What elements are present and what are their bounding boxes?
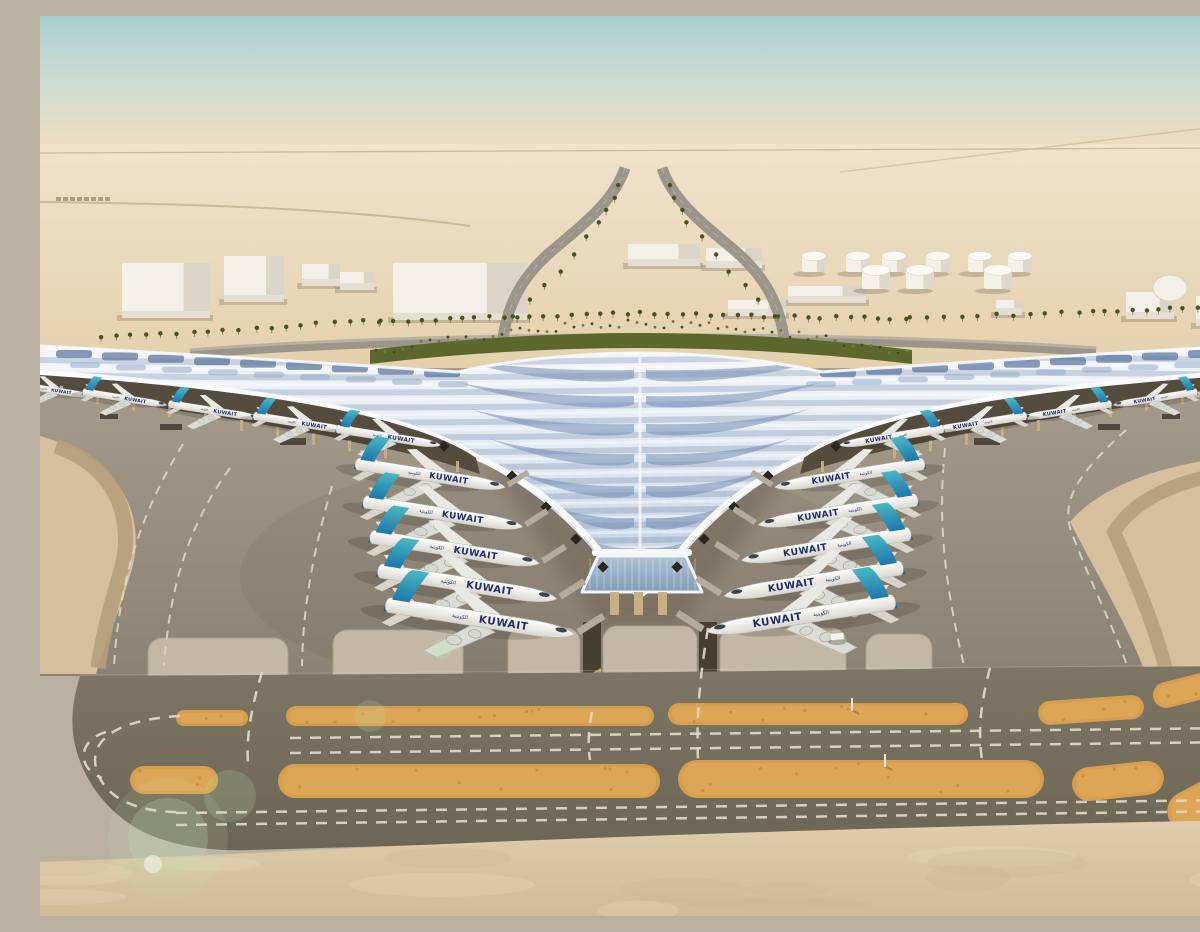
unpaved-strip [278, 764, 660, 798]
palm-tree [511, 314, 515, 318]
palm-tree [236, 328, 240, 332]
distant-structure [105, 197, 110, 201]
palm-tree [616, 183, 620, 187]
palm-tree [333, 320, 337, 324]
palm-tree [361, 318, 365, 322]
palm-tree [975, 314, 979, 318]
palm-tree [681, 312, 685, 316]
palm-tree [433, 318, 437, 322]
lens-flare-spot [108, 778, 228, 898]
palm-tree [762, 315, 766, 319]
palm-tree [721, 313, 725, 317]
palm-tree [597, 220, 601, 224]
palm-tree [709, 314, 713, 318]
distant-structure [77, 197, 82, 201]
palm-tree [584, 234, 588, 238]
palm-tree [849, 315, 853, 319]
palm-tree [1196, 305, 1200, 309]
palm-tree [1091, 309, 1095, 313]
ground-equipment [100, 414, 118, 419]
palm-tree [314, 320, 318, 324]
palm-tree [714, 252, 718, 256]
palm-tree [528, 297, 532, 301]
palm-tree [773, 314, 777, 318]
facade-column [348, 441, 351, 452]
palm-tree [1102, 309, 1106, 313]
ground-equipment [160, 424, 182, 430]
taxiway [72, 666, 1200, 850]
palm-tree [817, 316, 821, 320]
palm-tree [726, 269, 730, 273]
palm-tree [527, 314, 531, 318]
entrance-column [634, 592, 643, 615]
facade-column [312, 434, 315, 445]
glass-facade [582, 556, 702, 592]
palm-tree [448, 316, 452, 320]
palm-tree [743, 283, 747, 287]
palm-tree [570, 313, 574, 317]
distant-structure [84, 197, 89, 201]
palm-tree [515, 315, 519, 319]
palm-tree [1077, 310, 1081, 314]
unpaved-strip [286, 706, 654, 726]
palm-tree [348, 319, 352, 323]
palm-tree [862, 314, 866, 318]
palm-tree [192, 330, 196, 334]
lens-flare-spot [354, 700, 386, 732]
palm-tree [876, 316, 880, 320]
palm-tree [558, 269, 562, 273]
entrance-column [610, 592, 619, 615]
facade-column [929, 441, 932, 452]
palm-tree [700, 234, 704, 238]
palm-tree [994, 312, 998, 316]
rendering-canvas: KUWAITالكويتيةKUWAITالكويتيةKUWAITالكويت… [40, 16, 1200, 916]
palm-tree [1115, 309, 1119, 313]
palm-tree [541, 314, 545, 318]
palm-tree [611, 310, 615, 314]
palm-tree [284, 325, 288, 329]
palm-tree [694, 311, 698, 315]
palm-tree [1059, 310, 1063, 314]
palm-tree [638, 310, 642, 314]
palm-tree [555, 314, 559, 318]
palm-tree [604, 208, 608, 212]
distant-structure [98, 197, 103, 201]
palm-tree [960, 315, 964, 319]
palm-tree [220, 328, 224, 332]
distant-structure [70, 197, 75, 201]
ground-equipment [1098, 424, 1120, 430]
palm-tree [598, 311, 602, 315]
palm-tree [1011, 314, 1015, 318]
palm-tree [792, 313, 796, 317]
palm-tree [270, 326, 274, 330]
palm-tree [756, 297, 760, 301]
palm-tree [736, 313, 740, 317]
palm-tree [672, 196, 676, 200]
facade-column [456, 461, 459, 472]
palm-tree [391, 319, 395, 323]
unpaved-strip [678, 760, 1044, 798]
palm-tree [128, 332, 132, 336]
palm-tree [806, 315, 810, 319]
palm-tree [680, 208, 684, 212]
facade-column [821, 461, 824, 472]
palm-tree [542, 283, 546, 287]
palm-tree [887, 317, 891, 321]
palm-tree [472, 315, 476, 319]
palm-tree [1043, 311, 1047, 315]
palm-tree [1131, 308, 1135, 312]
palm-tree [668, 183, 672, 187]
distant-structure [56, 197, 61, 201]
palm-tree [585, 312, 589, 316]
facade-column [965, 434, 968, 445]
palm-tree [406, 319, 410, 323]
palm-tree [255, 326, 259, 330]
palm-tree [460, 316, 464, 320]
palm-tree [908, 315, 912, 319]
palm-tree [298, 323, 302, 327]
palm-tree [99, 335, 103, 339]
palm-tree [684, 220, 688, 224]
palm-tree [487, 314, 491, 318]
ground-equipment [1162, 414, 1180, 419]
palm-tree [378, 318, 382, 322]
distant-structure [91, 197, 96, 201]
unpaved-strip [176, 710, 248, 726]
palm-tree [206, 329, 210, 333]
palm-tree [942, 315, 946, 319]
lens-flare-spot [144, 855, 162, 873]
lens-flare-spot [432, 639, 452, 659]
facade-column [1037, 420, 1040, 431]
airport-aerial-rendering: KUWAITالكويتيةKUWAITالكويتيةKUWAITالكويت… [40, 16, 1200, 916]
facade-column [240, 420, 243, 431]
dome-building [1153, 275, 1187, 301]
palm-tree [1180, 306, 1184, 310]
palm-tree [158, 331, 162, 335]
palm-tree [626, 312, 630, 316]
palm-tree [834, 314, 838, 318]
palm-tree [1156, 307, 1160, 311]
palm-tree [502, 315, 506, 319]
palm-tree [174, 332, 178, 336]
palm-tree [114, 333, 118, 337]
palm-tree [1168, 305, 1172, 309]
palm-tree [613, 196, 617, 200]
palm-tree [652, 312, 656, 316]
palm-tree [1028, 312, 1032, 316]
palm-tree [665, 312, 669, 316]
palm-tree [925, 315, 929, 319]
service-vehicle [830, 632, 845, 640]
palm-tree [572, 252, 576, 256]
palm-tree [749, 313, 753, 317]
entrance-column [658, 592, 667, 615]
palm-tree [1145, 308, 1149, 312]
unpaved-strip [668, 703, 968, 725]
palm-tree [144, 332, 148, 336]
distant-structure [63, 197, 68, 201]
palm-tree [420, 318, 424, 322]
